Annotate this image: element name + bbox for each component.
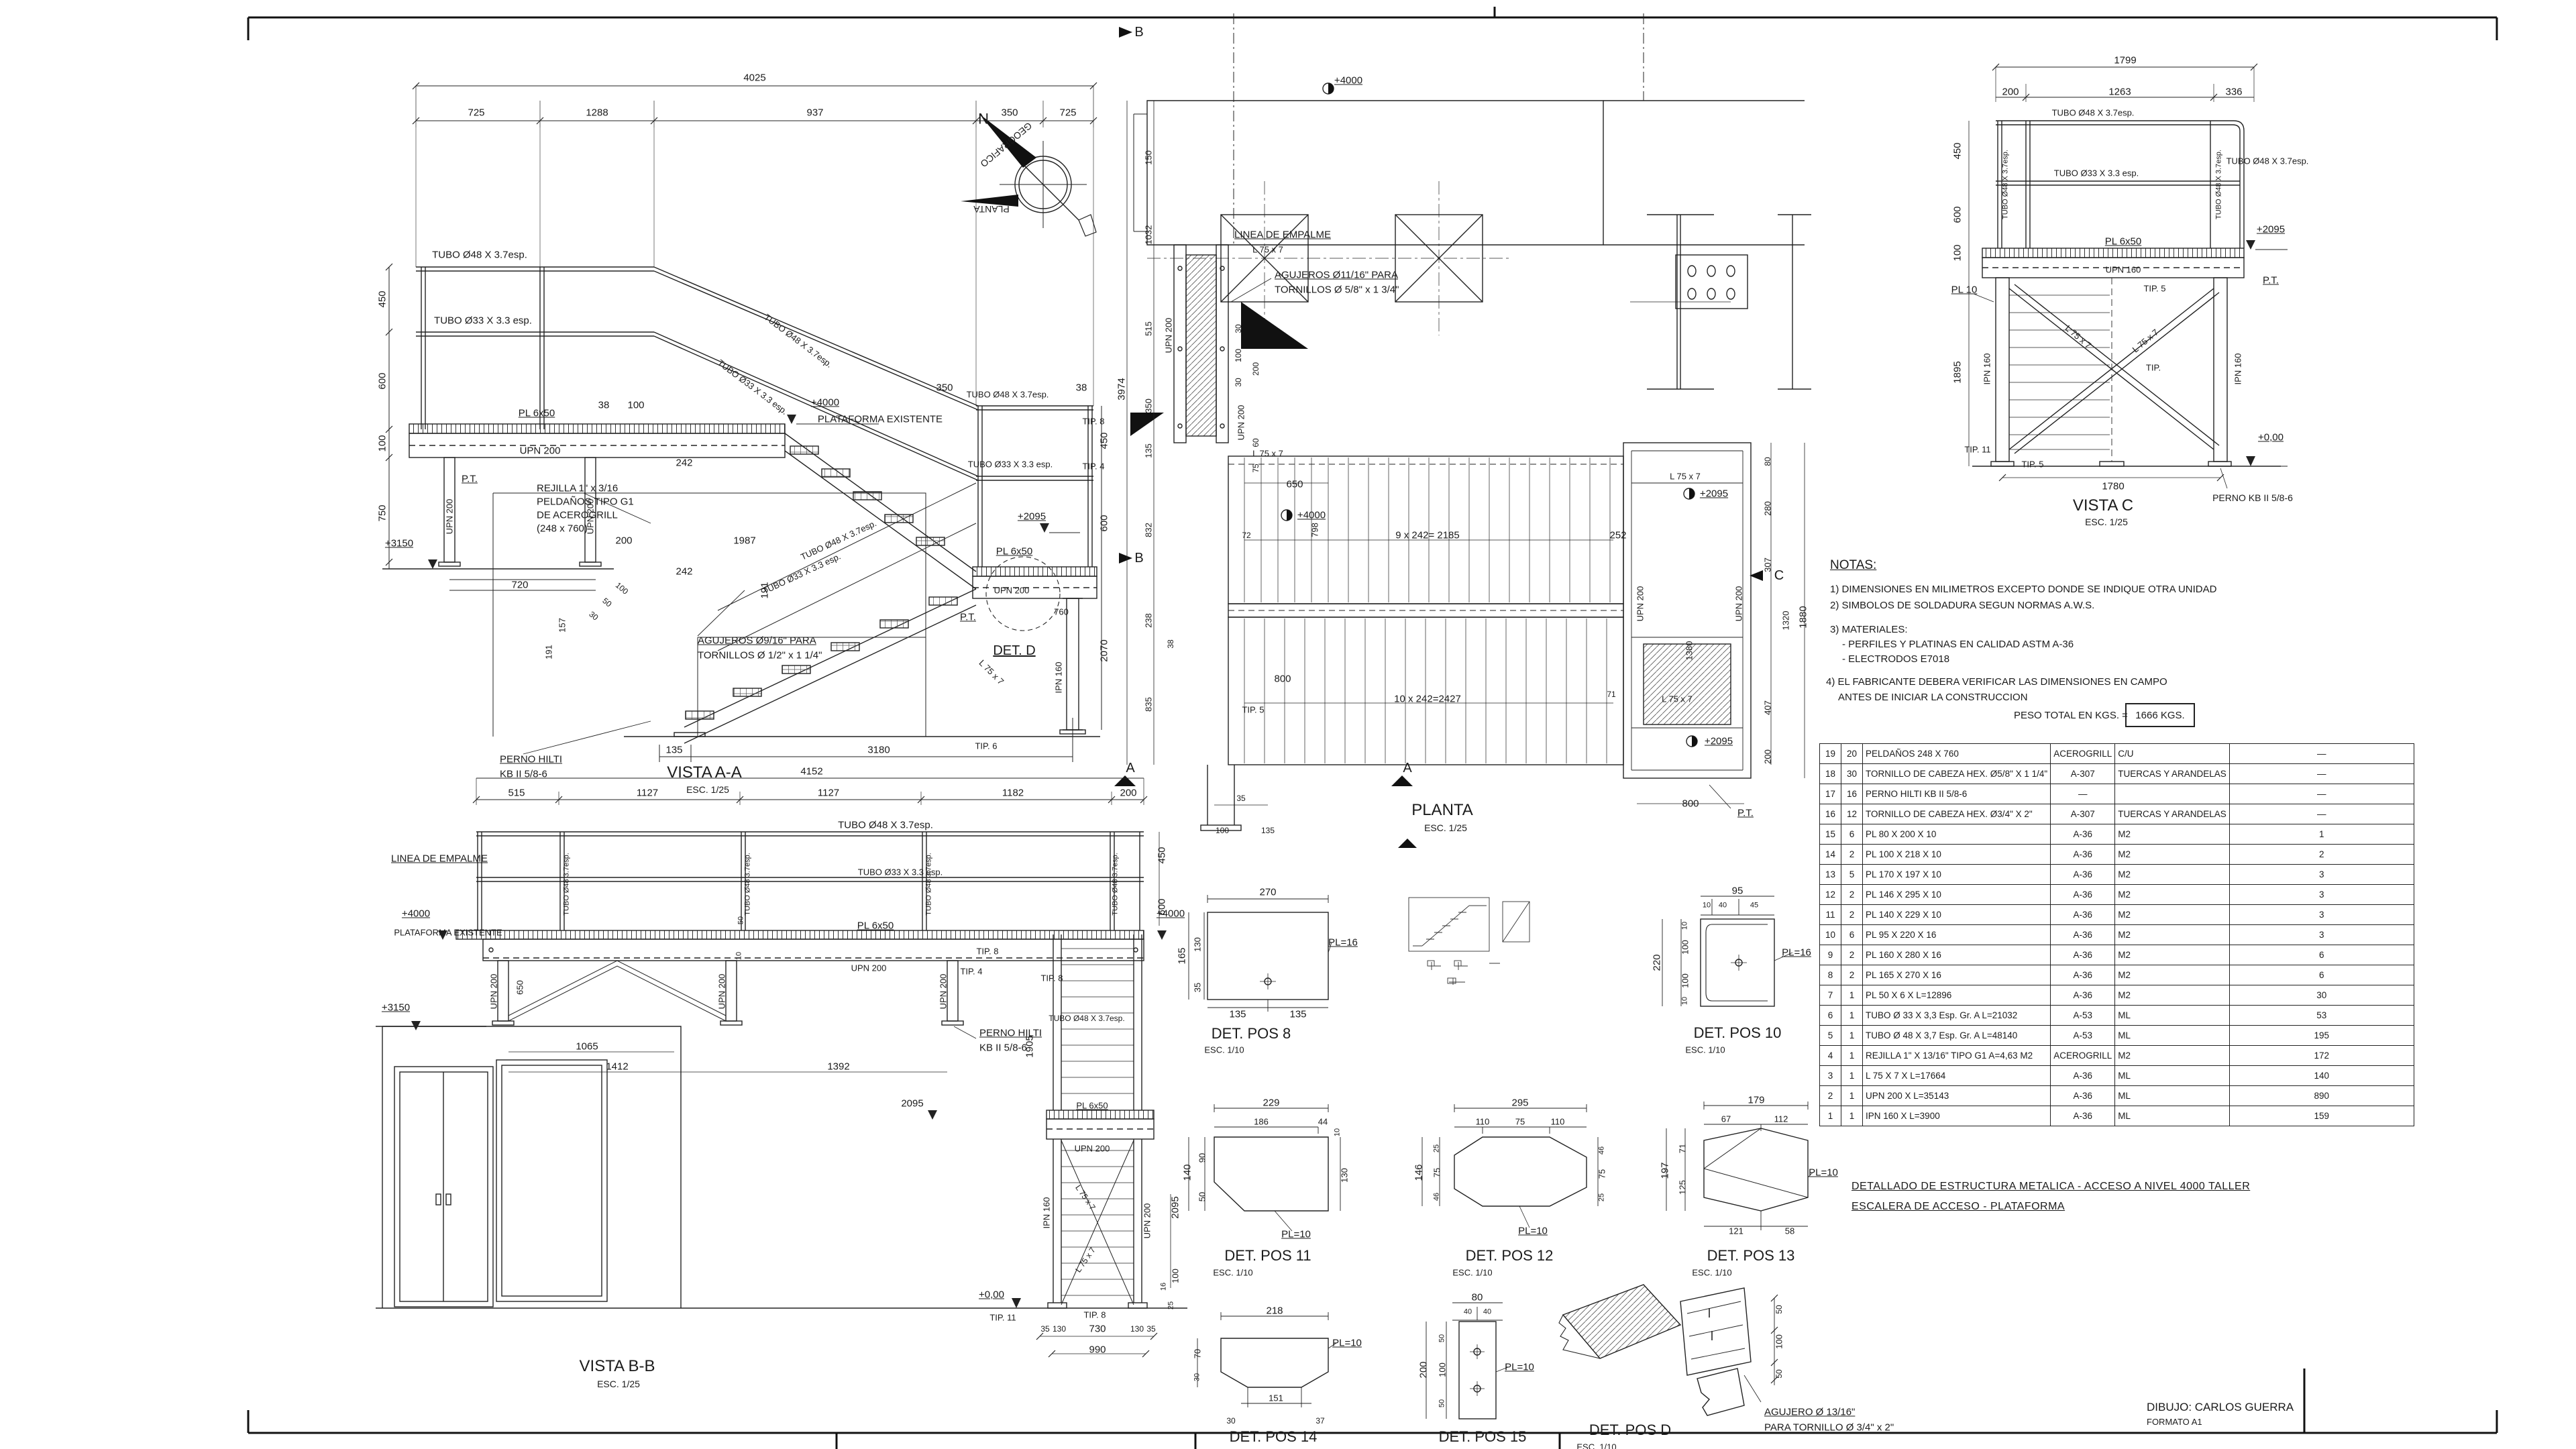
dim-label: B bbox=[1134, 25, 1143, 39]
bom-row: 156PL 80 X 200 X 10A-36M21 bbox=[1820, 824, 2414, 845]
dim-label: +0,00 bbox=[979, 1290, 1004, 1300]
dim-label: +2095 bbox=[2257, 225, 2285, 235]
dim-label: 37 bbox=[1316, 1417, 1324, 1425]
dim-label: 350 bbox=[936, 383, 953, 393]
notes-header: NOTAS: bbox=[1830, 558, 1876, 573]
dim-label: 200 bbox=[2002, 87, 2019, 97]
dim-label: 720 bbox=[511, 580, 528, 590]
bom-cell: A-36 bbox=[2051, 845, 2115, 865]
bom-cell: M2 bbox=[2115, 1046, 2230, 1066]
dim-label: 50 bbox=[1439, 1334, 1446, 1342]
dim-label: 135 bbox=[1144, 443, 1153, 458]
dim-label: 1263 bbox=[2108, 87, 2131, 97]
dim-label: TIP. 8 bbox=[1040, 974, 1063, 983]
planta-labels: BB+4000LINEA DE EMPALMEAGUJEROS Ø11/16" … bbox=[1107, 13, 1811, 852]
dim-label: 40 bbox=[1719, 902, 1727, 910]
dim-label: 218 bbox=[1266, 1306, 1283, 1316]
bom-cell: 16 bbox=[1820, 804, 1841, 824]
dim-label: TUBO Ø48 X 3.7esp. bbox=[432, 250, 527, 260]
dim-label: L 75 x 7 bbox=[2131, 327, 2159, 354]
dim-label: IPN 160 bbox=[1983, 354, 1992, 385]
dim-label: ESC. 1/10 bbox=[1452, 1269, 1492, 1277]
dim-label: P.T. bbox=[1737, 808, 1754, 818]
dim-label: IPN 160 bbox=[1042, 1197, 1051, 1229]
peso-total-value: 1666 KGS. bbox=[2125, 703, 2195, 727]
dim-label: 25 bbox=[1599, 1193, 1606, 1201]
vista-c-view: 17992001263336TUBO Ø48 X 3.7esp.TUBO Ø33… bbox=[1932, 27, 2321, 530]
dim-label: TIP. 5 bbox=[2021, 460, 2043, 469]
bom-cell: 1 bbox=[1841, 1046, 1863, 1066]
dim-label: TUBO Ø48 X 3.7esp. bbox=[2052, 109, 2135, 117]
dim-label: TUBO Ø48 3.7esp. bbox=[926, 853, 933, 916]
dim-label: 280 bbox=[1764, 501, 1772, 516]
dim-label: 67 bbox=[1721, 1115, 1731, 1124]
bom-cell: ML bbox=[2115, 1066, 2230, 1086]
dim-label: 125 bbox=[1678, 1180, 1687, 1195]
dim-label: 30 bbox=[1194, 1373, 1201, 1381]
dim-label: IPN 160 bbox=[1055, 662, 1063, 694]
dim-label: 100 bbox=[614, 581, 629, 596]
bom-cell: C/U bbox=[2115, 744, 2230, 764]
dim-label: 835 bbox=[1144, 697, 1153, 712]
dim-label: 50 bbox=[601, 596, 613, 608]
dim-label: TORNILLOS Ø 1/2" x 1 1/4" bbox=[698, 651, 822, 661]
drawing-sheet: 40257251288937350725TUBO Ø48 X 3.7esp.TU… bbox=[0, 0, 2576, 1449]
dim-label: 25 bbox=[1434, 1144, 1441, 1152]
bom-cell: PL 100 X 218 X 10 bbox=[1863, 845, 2051, 865]
bom-cell: 15 bbox=[1820, 824, 1841, 845]
dim-label: 252 bbox=[1609, 531, 1626, 541]
dim-label: PL 6x50 bbox=[1076, 1102, 1108, 1110]
bom-cell: — bbox=[2229, 784, 2414, 804]
bom-cell: 5 bbox=[1820, 1026, 1841, 1046]
dim-label: 798 bbox=[1311, 523, 1320, 537]
dim-label: N bbox=[978, 111, 989, 125]
drawn-by: DIBUJO: CARLOS GUERRA bbox=[2147, 1401, 2294, 1414]
bom-cell: 3 bbox=[2229, 865, 2414, 885]
bom-row: 21UPN 200 X L=35143A-36ML890 bbox=[1820, 1086, 2414, 1106]
dim-label: 220 bbox=[1652, 954, 1662, 971]
bom-cell: 10 bbox=[1820, 925, 1841, 945]
dim-label: +0,00 bbox=[2258, 433, 2284, 443]
dim-label: 75 bbox=[1598, 1169, 1607, 1179]
dim-label: 130 bbox=[1340, 1168, 1349, 1183]
bom-cell: M2 bbox=[2115, 965, 2230, 985]
dim-label: TUBO Ø33 X 3.3 esp. bbox=[2054, 169, 2139, 178]
dim-label: 9 x 242= 2185 bbox=[1395, 531, 1460, 541]
reference-thumbnail bbox=[1402, 892, 1563, 1000]
dim-label: 1895 bbox=[1953, 361, 1963, 383]
dim-label: 40 bbox=[1483, 1309, 1491, 1316]
dim-label: PLANTA bbox=[973, 205, 1009, 214]
dim-label: UPN 200 bbox=[1237, 405, 1246, 441]
bom-row: 61TUBO Ø 33 X 3,3 Esp. Gr. A L=21032A-53… bbox=[1820, 1006, 2414, 1026]
bom-cell: M2 bbox=[2115, 945, 2230, 965]
dim-label: 270 bbox=[1259, 888, 1276, 898]
dim-label: 16 bbox=[1161, 1283, 1168, 1291]
dim-label: 600 bbox=[1953, 206, 1963, 223]
bom-cell: 890 bbox=[2229, 1086, 2414, 1106]
dim-label: TUBO Ø48 X 3.7esp. bbox=[2226, 157, 2309, 166]
bom-cell: 30 bbox=[1841, 764, 1863, 784]
dim-label: 515 bbox=[1144, 321, 1153, 336]
dim-label: UPN 200 bbox=[1735, 586, 1743, 622]
dim-label: GEOGRAFICO bbox=[979, 121, 1034, 169]
dim-label: PL=10 bbox=[1505, 1362, 1534, 1373]
dim-label: 146 bbox=[1414, 1164, 1424, 1181]
bom-cell: 1 bbox=[1841, 1106, 1863, 1126]
bom-cell: PL 165 X 270 X 16 bbox=[1863, 965, 2051, 985]
bom-row: 1716PERNO HILTI KB II 5/8-6—— bbox=[1820, 784, 2414, 804]
bom-row: 112PL 140 X 229 X 10A-36M23 bbox=[1820, 905, 2414, 925]
bom-cell: A-53 bbox=[2051, 1006, 2115, 1026]
bom-cell: TORNILLO DE CABEZA HEX. Ø5/8" X 1 1/4" bbox=[1863, 764, 2051, 784]
note-3: 3) MATERIALES: bbox=[1830, 624, 1908, 635]
dim-label: 100 bbox=[1216, 826, 1229, 835]
dim-label: TIP. 5 bbox=[2143, 284, 2165, 293]
bom-cell: ML bbox=[2115, 1026, 2230, 1046]
dim-label: L 75 x 7 bbox=[1252, 246, 1283, 254]
bom-cell: A-36 bbox=[2051, 1086, 2115, 1106]
bom-cell: 19 bbox=[1820, 744, 1841, 764]
dim-label: ESC. 1/25 bbox=[1424, 823, 1467, 833]
dim-label: 100 bbox=[627, 400, 644, 411]
dim-label: 3974 bbox=[1117, 378, 1127, 400]
dim-label: 58 bbox=[1785, 1227, 1794, 1236]
dim-label: 200 bbox=[1764, 749, 1772, 764]
dim-label: 1065 bbox=[576, 1042, 598, 1052]
det-pos-15-labels: 8040402005010050PL=10DET. POS 15ESC. 1/1… bbox=[1382, 1281, 1563, 1449]
bom-cell: 2 bbox=[1841, 945, 1863, 965]
dim-label: PLATAFORMA EXISTENTE bbox=[394, 928, 502, 937]
bom-cell: — bbox=[2229, 764, 2414, 784]
dim-label: DET. D bbox=[993, 644, 1035, 657]
dim-label: P.T. bbox=[2263, 276, 2279, 286]
dim-label: 4025 bbox=[743, 73, 765, 83]
bom-cell: 14 bbox=[1820, 845, 1841, 865]
view-title: PLANTA bbox=[1411, 802, 1473, 818]
dim-label: ESC. 1/10 bbox=[1576, 1443, 1616, 1449]
dim-label: 38 bbox=[598, 400, 610, 411]
dim-label: L 75 x 7 bbox=[1074, 1246, 1097, 1274]
det-pos-8-labels: 27016513035PL=16135135DET. POS 8ESC. 1/1… bbox=[1167, 872, 1362, 1060]
bom-cell: 6 bbox=[1841, 824, 1863, 845]
det-pos-14-view: 21870301513037PL=10DET. POS 14ESC. 1/10 bbox=[1167, 1281, 1368, 1449]
view-title: DET. POS 11 bbox=[1224, 1248, 1311, 1263]
dim-label: 179 bbox=[1748, 1095, 1764, 1106]
dim-label: 75 bbox=[1433, 1168, 1442, 1177]
dim-label: 350 bbox=[1144, 398, 1153, 413]
bom-cell: M2 bbox=[2115, 905, 2230, 925]
bom-cell: PL 140 X 229 X 10 bbox=[1863, 905, 2051, 925]
dim-label: AGUJEROS Ø11/16" PARA bbox=[1275, 270, 1398, 280]
dim-label: 1392 bbox=[827, 1062, 849, 1072]
dim-label: TUBO Ø48 X 3.7esp. bbox=[763, 313, 834, 369]
dim-label: 90 bbox=[1198, 1153, 1207, 1163]
dim-label: 515 bbox=[508, 788, 525, 798]
dim-label: UPN 160 bbox=[2106, 266, 2141, 274]
bom-cell: 12 bbox=[1841, 804, 1863, 824]
bom-row: 135PL 170 X 197 X 10A-36M23 bbox=[1820, 865, 2414, 885]
note-4: 4) EL FABRICANTE DEBERA VERIFICAR LAS DI… bbox=[1826, 676, 2167, 688]
bom-cell: 6 bbox=[1820, 1006, 1841, 1026]
dim-label: 95 bbox=[1732, 886, 1743, 896]
bom-cell: UPN 200 X L=35143 bbox=[1863, 1086, 2051, 1106]
dim-label: +3150 bbox=[382, 1003, 410, 1013]
dim-label: 150 bbox=[1144, 150, 1153, 165]
bom-cell: PL 170 X 197 X 10 bbox=[1863, 865, 2051, 885]
dim-label: 30 bbox=[1234, 378, 1242, 386]
dim-label: TUBO Ø48 X 3.7esp. bbox=[1049, 1014, 1124, 1022]
dim-label: A bbox=[1403, 761, 1411, 775]
note-2: 2) SIMBOLOS DE SOLDADURA SEGUN NORMAS A.… bbox=[1830, 600, 2094, 611]
bom-cell: IPN 160 X L=3900 bbox=[1863, 1106, 2051, 1126]
dim-label: TIP. 5 bbox=[1242, 706, 1264, 714]
bom-row: 1612TORNILLO DE CABEZA HEX. Ø3/4" X 2"A-… bbox=[1820, 804, 2414, 824]
bom-cell: 2 bbox=[1841, 965, 1863, 985]
dim-label: 238 bbox=[1144, 613, 1153, 628]
dim-label: ESC. 1/10 bbox=[1204, 1046, 1244, 1055]
dim-label: 135 bbox=[1261, 826, 1275, 835]
dim-label: TIP. 8 bbox=[1082, 417, 1104, 426]
dim-label: L 75 x 7 bbox=[1252, 449, 1283, 458]
dim-label: KB II 5/8-6 bbox=[979, 1043, 1027, 1053]
bom-cell: ML bbox=[2115, 1106, 2230, 1126]
dim-label: 10 bbox=[1703, 902, 1711, 910]
dim-label: 1182 bbox=[1002, 788, 1024, 798]
dim-label: 1380 bbox=[1685, 641, 1694, 661]
dim-label: ESC. 1/10 bbox=[1213, 1269, 1252, 1277]
dim-label: +4000 bbox=[1297, 511, 1326, 521]
dim-label: IPN 160 bbox=[2234, 354, 2243, 385]
dim-label: 200 bbox=[615, 536, 632, 546]
bom-cell: TUERCAS Y ARANDELAS bbox=[2115, 764, 2230, 784]
dim-label: 70 bbox=[1193, 1349, 1202, 1358]
bom-cell: PL 95 X 220 X 16 bbox=[1863, 925, 2051, 945]
dim-label: +4000 bbox=[402, 909, 430, 919]
dim-label: 1799 bbox=[2114, 56, 2136, 66]
bom-cell: 4 bbox=[1820, 1046, 1841, 1066]
dim-label: TUBO Ø33 X 3.3 esp. bbox=[716, 358, 790, 416]
bom-cell: A-36 bbox=[2051, 824, 2115, 845]
dim-label: 100 bbox=[1438, 1362, 1447, 1377]
dim-label: TUBO Ø48 X 3.7esp. bbox=[967, 390, 1049, 399]
dim-label: 71 bbox=[1678, 1144, 1687, 1153]
det-pos-12-labels: 29511075110146257546467525PL=10DET. POS … bbox=[1395, 1073, 1617, 1281]
dim-label: PERNO HILTI bbox=[500, 755, 562, 765]
dim-label: PELDAÑOS TIPO G1 bbox=[537, 497, 634, 507]
bom-cell: A-36 bbox=[2051, 905, 2115, 925]
bom-cell: PL 146 X 295 X 10 bbox=[1863, 885, 2051, 905]
dim-label: 1987 bbox=[733, 536, 755, 546]
dim-label: +4000 bbox=[1334, 76, 1362, 86]
dim-label: 40 bbox=[1464, 1309, 1472, 1316]
note-1: 1) DIMENSIONES EN MILIMETROS EXCEPTO DON… bbox=[1830, 584, 2216, 595]
dim-label: TORNILLOS Ø 5/8" x 1 3/4" bbox=[1275, 285, 1399, 295]
bom-row: 82PL 165 X 270 X 16A-36M26 bbox=[1820, 965, 2414, 985]
dim-label: 760 bbox=[1054, 608, 1069, 616]
dim-label: REJILLA 1" x 3/16 bbox=[537, 484, 618, 494]
dim-label: 75 bbox=[1252, 464, 1260, 472]
dim-label: 35 bbox=[1236, 794, 1245, 802]
bom-cell: PERNO HILTI KB II 5/8-6 bbox=[1863, 784, 2051, 804]
dim-label: 3180 bbox=[867, 745, 890, 755]
bom-cell: 1 bbox=[1841, 1066, 1863, 1086]
bom-row: 71PL 50 X 6 X L=12896A-36M230 bbox=[1820, 985, 2414, 1006]
det-pos-14-labels: 21870301513037PL=10DET. POS 14ESC. 1/10 bbox=[1167, 1281, 1368, 1449]
dim-label: 71 bbox=[1607, 690, 1615, 698]
view-title: DET. POS 15 bbox=[1439, 1430, 1527, 1444]
bom-cell: 11 bbox=[1820, 905, 1841, 925]
dim-label: 990 bbox=[1089, 1345, 1106, 1355]
dim-label: 650 bbox=[1286, 480, 1303, 490]
dim-label: DE ACEROGRILL bbox=[537, 511, 618, 521]
det-pos-8-view: 27016513035PL=16135135DET. POS 8ESC. 1/1… bbox=[1167, 872, 1362, 1060]
bom-cell: 8 bbox=[1820, 965, 1841, 985]
dim-label: 50 bbox=[1198, 1192, 1207, 1201]
det-pos-12-view: 29511075110146257546467525PL=10DET. POS … bbox=[1395, 1073, 1617, 1281]
dim-label: TUBO Ø48 3.7esp. bbox=[1112, 853, 1120, 916]
dim-label: LINEA DE EMPALME bbox=[391, 854, 488, 864]
bom-cell: REJILLA 1" X 13/16" TIPO G1 A=4,63 M2 bbox=[1863, 1046, 2051, 1066]
dim-label: 295 bbox=[1511, 1098, 1528, 1108]
bom-cell: 1 bbox=[2229, 824, 2414, 845]
dim-label: PL 6x50 bbox=[857, 921, 894, 931]
dim-label: 130 bbox=[1053, 1325, 1066, 1333]
dim-label: 307 bbox=[1764, 557, 1772, 572]
dim-label: 130 bbox=[1130, 1325, 1144, 1333]
bom-cell: 13 bbox=[1820, 865, 1841, 885]
dim-label: 72 bbox=[1242, 531, 1250, 539]
dim-label: L 75 x 7 bbox=[2063, 323, 2092, 350]
dim-label: 1032 bbox=[1144, 225, 1153, 245]
bom-cell: A-36 bbox=[2051, 945, 2115, 965]
dim-label: 100 bbox=[1775, 1334, 1784, 1349]
bom-cell: TUBO Ø 33 X 3,3 Esp. Gr. A L=21032 bbox=[1863, 1006, 2051, 1026]
bom-cell: 159 bbox=[2229, 1106, 2414, 1126]
dim-label: 50 bbox=[1775, 1305, 1783, 1313]
dim-label: 242 bbox=[676, 458, 692, 468]
dim-label: 800 bbox=[1274, 674, 1291, 684]
bom-cell: 1 bbox=[1841, 1006, 1863, 1026]
dim-label: 1780 bbox=[2102, 482, 2124, 492]
dim-label: PARA TORNILLO Ø 3/4" x 2" bbox=[1764, 1423, 1894, 1433]
bom-cell: — bbox=[2051, 784, 2115, 804]
dim-label: L 75 x 7 bbox=[1670, 472, 1701, 481]
bom-cell: 12 bbox=[1820, 885, 1841, 905]
bom-cell: M2 bbox=[2115, 824, 2230, 845]
dim-label: P.T. bbox=[462, 474, 478, 484]
bom-cell: 6 bbox=[1841, 925, 1863, 945]
bom-cell: A-53 bbox=[2051, 1026, 2115, 1046]
bom-row: 31L 75 X 7 X L=17664A-36ML140 bbox=[1820, 1066, 2414, 1086]
dim-label: 197 bbox=[1660, 1162, 1670, 1179]
dim-label: TUBO Ø48 X 3.7esp. bbox=[2002, 150, 2010, 219]
bom-cell: 195 bbox=[2229, 1026, 2414, 1046]
dim-label: UPN 200 bbox=[1075, 1144, 1110, 1153]
dim-label: UPN 200 bbox=[1165, 318, 1173, 354]
dim-label: 725 bbox=[468, 108, 484, 118]
dim-label: 151 bbox=[1269, 1394, 1283, 1403]
dim-label: 50 bbox=[1775, 1369, 1783, 1378]
dim-label: PERNO KB II 5/8-6 bbox=[2212, 493, 2293, 502]
dim-label: UPN 200 bbox=[1143, 1203, 1152, 1239]
bom-cell: — bbox=[2229, 744, 2414, 764]
bom-cell: A-36 bbox=[2051, 925, 2115, 945]
bom-cell: 1 bbox=[1841, 1086, 1863, 1106]
dim-label: ESC. 1/25 bbox=[597, 1379, 640, 1389]
dim-label: 600 bbox=[378, 372, 388, 389]
dim-label: 30 bbox=[1226, 1417, 1235, 1425]
sheet-format: FORMATO A1 bbox=[2147, 1417, 2202, 1427]
bom-cell: A-36 bbox=[2051, 885, 2115, 905]
dim-label: 1320 bbox=[1782, 611, 1790, 631]
dim-label: UPN 200 bbox=[490, 974, 498, 1010]
vista-bb-labels: 4152515112711271182200TUBO Ø48 X 3.7esp.… bbox=[376, 765, 1187, 1449]
dim-label: AGUJEROS Ø9/16" PARA bbox=[698, 636, 816, 646]
bom-cell: 3 bbox=[2229, 925, 2414, 945]
dim-label: 100 bbox=[1681, 940, 1690, 955]
dim-label: 135 bbox=[665, 745, 682, 755]
dim-label: 60 bbox=[1252, 438, 1260, 447]
bom-cell: 20 bbox=[1841, 744, 1863, 764]
bom-cell: M2 bbox=[2115, 845, 2230, 865]
bom-cell: 1 bbox=[1820, 1106, 1841, 1126]
dim-label: 46 bbox=[1434, 1193, 1441, 1201]
dim-label: 1127 bbox=[818, 788, 839, 798]
dim-label: 100 bbox=[1681, 973, 1690, 988]
det-pos-11-view: 22918644101409050130PL=10DET. POS 11ESC.… bbox=[1167, 1073, 1368, 1281]
dim-label: TUBO Ø48 X 3.7esp. bbox=[2216, 150, 2223, 219]
thumbnail-linework bbox=[1402, 892, 1563, 1000]
bom-cell: 17 bbox=[1820, 784, 1841, 804]
dim-label: 30 bbox=[1234, 324, 1242, 333]
dim-label: 1880 bbox=[1799, 606, 1809, 628]
bom-cell: 2 bbox=[1841, 845, 1863, 865]
dim-label: C bbox=[1774, 569, 1784, 582]
bom-cell: TUBO Ø 48 X 3,7 Esp. Gr. A L=48140 bbox=[1863, 1026, 2051, 1046]
bom-cell: TUERCAS Y ARANDELAS bbox=[2115, 804, 2230, 824]
dim-label: 200 bbox=[1419, 1361, 1429, 1378]
bom-cell: 6 bbox=[2229, 965, 2414, 985]
det-pos-13-view: 179671121977112512158PL=10DET. POS 13ESC… bbox=[1637, 1073, 1845, 1281]
dim-label: 44 bbox=[1318, 1118, 1328, 1126]
bom-cell: ACEROGRILL bbox=[2051, 744, 2115, 764]
bom-cell: L 75 X 7 X L=17664 bbox=[1863, 1066, 2051, 1086]
bom-cell: ACEROGRILL bbox=[2051, 1046, 2115, 1066]
bom-cell: 6 bbox=[2229, 945, 2414, 965]
dim-label: PLATAFORMA EXISTENTE bbox=[818, 415, 943, 425]
dim-label: 135 bbox=[1289, 1010, 1306, 1020]
dim-label: UPN 200 bbox=[939, 974, 948, 1010]
dim-label: UPN 200 bbox=[520, 446, 561, 456]
dim-label: 38 bbox=[1167, 639, 1175, 648]
dim-label: 186 bbox=[1254, 1118, 1269, 1126]
bom-cell: ML bbox=[2115, 1086, 2230, 1106]
dim-label: TIP. 11 bbox=[989, 1313, 1016, 1322]
dim-label: 135 bbox=[1229, 1010, 1246, 1020]
bill-of-materials: 1920PELDAÑOS 248 X 760ACEROGRILLC/U—1830… bbox=[1819, 743, 2414, 1126]
dim-label: 38 bbox=[1076, 383, 1087, 393]
note-3a: - PERFILES Y PLATINAS EN CALIDAD ASTM A-… bbox=[1842, 639, 2074, 650]
bom-cell: PL 80 X 200 X 10 bbox=[1863, 824, 2051, 845]
dim-label: +2095 bbox=[1705, 737, 1733, 747]
dim-label: UPN 200 bbox=[851, 964, 887, 973]
dim-label: TIP. bbox=[2146, 364, 2161, 372]
dim-label: 100 bbox=[1953, 244, 1963, 261]
note-4b: ANTES DE INICIAR LA CONSTRUCCION bbox=[1838, 692, 2028, 703]
bom-cell: 7 bbox=[1820, 985, 1841, 1006]
